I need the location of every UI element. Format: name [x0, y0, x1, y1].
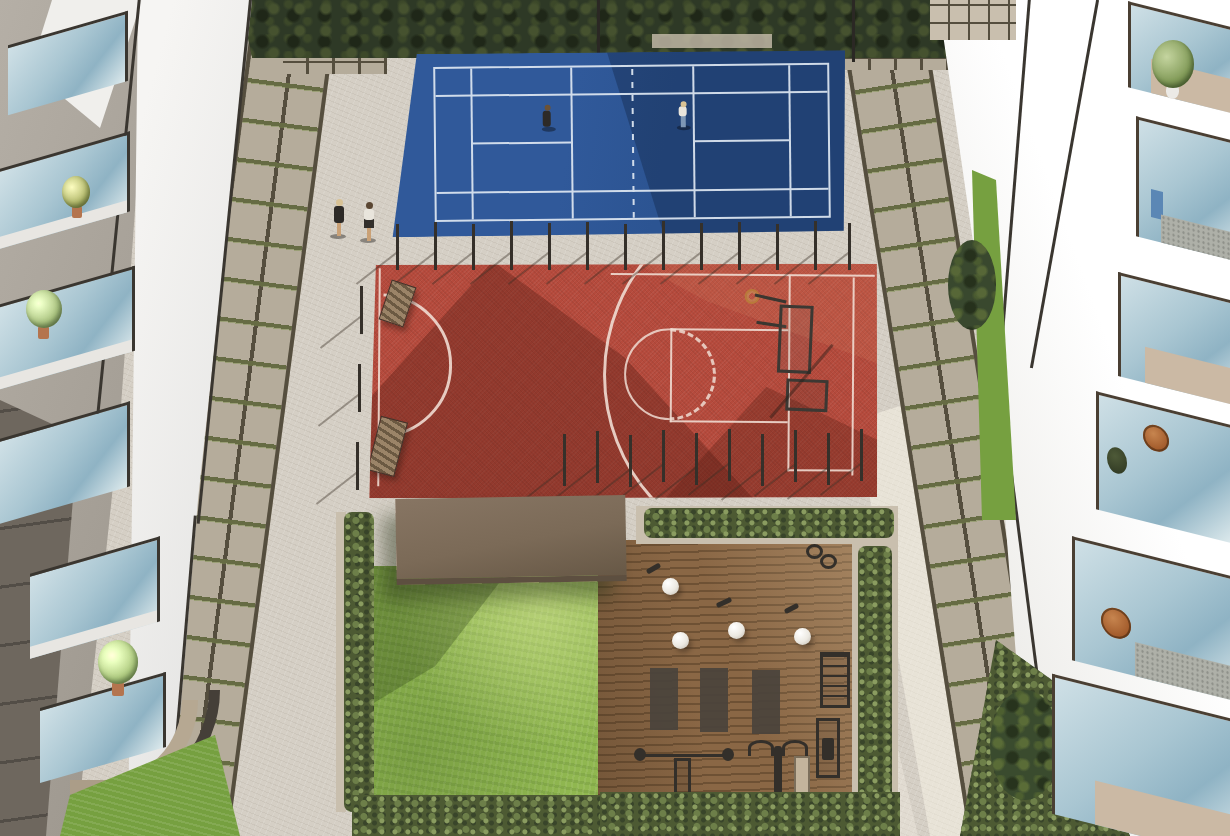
ski-arm: [782, 740, 808, 756]
dumbbell: [716, 597, 733, 608]
light-pole-right: [852, 0, 855, 62]
hoop-backboard: [777, 305, 814, 374]
basketball-hoop: [730, 281, 871, 432]
fence-post: [629, 435, 632, 487]
fence-row-mid: [390, 220, 860, 282]
exercise-ball: [662, 578, 679, 595]
balcony: [1136, 116, 1230, 259]
player-light: [676, 101, 690, 133]
player-dark: [540, 105, 554, 135]
planter-wall-top: [652, 34, 772, 48]
balcony-floor-tan: [1095, 781, 1230, 836]
balcony-plant-white-green: [98, 640, 138, 684]
hedge-gym-bottom: [600, 792, 900, 836]
fence-post: [596, 431, 599, 483]
barbell-plate: [634, 748, 646, 761]
fence-post: [695, 433, 698, 485]
pedestrian-2: [360, 202, 378, 246]
fence-row-left: [356, 286, 386, 516]
fence-post: [563, 434, 566, 486]
fence-post: [624, 224, 627, 270]
badminton-net-line: [631, 67, 635, 218]
fence-post: [360, 286, 363, 334]
badminton-center-line-right: [693, 139, 789, 142]
player-dark-shadow: [542, 127, 556, 132]
ski-column: [774, 746, 782, 794]
fence-post: [472, 224, 475, 270]
rope-coil: [820, 554, 837, 569]
tree-right-bottom: [990, 690, 1060, 800]
battle-ropes: [804, 542, 844, 576]
fence-post: [396, 224, 399, 270]
right-tower: [920, 0, 1230, 836]
hedge-gym-right: [858, 546, 892, 822]
hanging-wicker-chair: [1101, 605, 1131, 642]
fence-post: [700, 223, 703, 270]
lawn-shadow-canopy: [372, 566, 598, 804]
balcony-plant-pale: [26, 290, 62, 328]
player-dark-body: [543, 111, 551, 127]
tree-right-mid: [948, 240, 996, 330]
fence-post: [662, 430, 665, 482]
fence-post: [548, 223, 551, 270]
weight-rack: [820, 652, 850, 708]
badminton-center-line-left: [471, 141, 571, 144]
exercise-ball: [672, 632, 689, 649]
fence-post: [761, 434, 764, 486]
yoga-mat: [700, 668, 728, 732]
left-tower: [0, 0, 270, 836]
exercise-ball: [728, 622, 745, 639]
player-light-legs: [681, 115, 686, 127]
lat-machine: [812, 718, 846, 784]
pedestrian-1-body: [334, 206, 344, 223]
fence-post: [814, 221, 817, 270]
fence-post: [827, 433, 830, 485]
fence-post: [776, 224, 779, 270]
lawn: [372, 566, 598, 804]
player-light-body: [679, 106, 687, 116]
badminton-boundary: [433, 63, 831, 222]
lat-seat: [822, 738, 834, 760]
fence-post: [860, 429, 863, 481]
hanging-wicker-chair: [1143, 422, 1169, 454]
pedestrian-2-legs: [367, 226, 371, 241]
roof-planter-top: [930, 0, 1016, 40]
fence-post: [434, 222, 437, 270]
yoga-mat: [752, 670, 780, 734]
pedestrian-1: [330, 198, 348, 242]
courtyard-render: [0, 0, 1230, 836]
fence-post: [794, 430, 797, 482]
barbell-bar: [638, 754, 732, 757]
ski-arm: [748, 740, 774, 756]
pedestrian-2-skirt: [364, 219, 374, 228]
canopy-shelter: [395, 495, 626, 585]
fence-post: [738, 222, 741, 270]
hoop-base: [785, 378, 828, 412]
barbell-plate: [722, 748, 734, 761]
hoop-arm-1: [755, 294, 787, 304]
fence-post: [586, 222, 589, 270]
dumbbell: [784, 603, 800, 614]
fence-post: [358, 364, 361, 412]
balcony-plant-right: [1152, 40, 1194, 88]
hedge-lawn-bottom: [352, 795, 620, 836]
balcony-plant-dark: [1107, 445, 1127, 476]
fence-post: [510, 221, 513, 270]
player-light-head: [681, 101, 687, 107]
dumbbell: [646, 563, 661, 575]
player-dark-head: [545, 105, 551, 111]
fence-post: [848, 223, 851, 270]
fence-post: [356, 442, 359, 490]
exercise-ball: [794, 628, 811, 645]
hedge-lawn-left: [344, 512, 374, 812]
badminton-court: [387, 50, 847, 238]
fence-post: [728, 429, 731, 481]
fence-post: [662, 221, 665, 270]
pedestrian-1-head: [336, 199, 343, 206]
balcony-plant-yellow: [62, 176, 90, 208]
pedestrian-2-head: [366, 202, 373, 209]
pedestrians: [328, 194, 388, 250]
yoga-mat: [650, 668, 678, 730]
pedestrian-2-body: [364, 209, 374, 220]
